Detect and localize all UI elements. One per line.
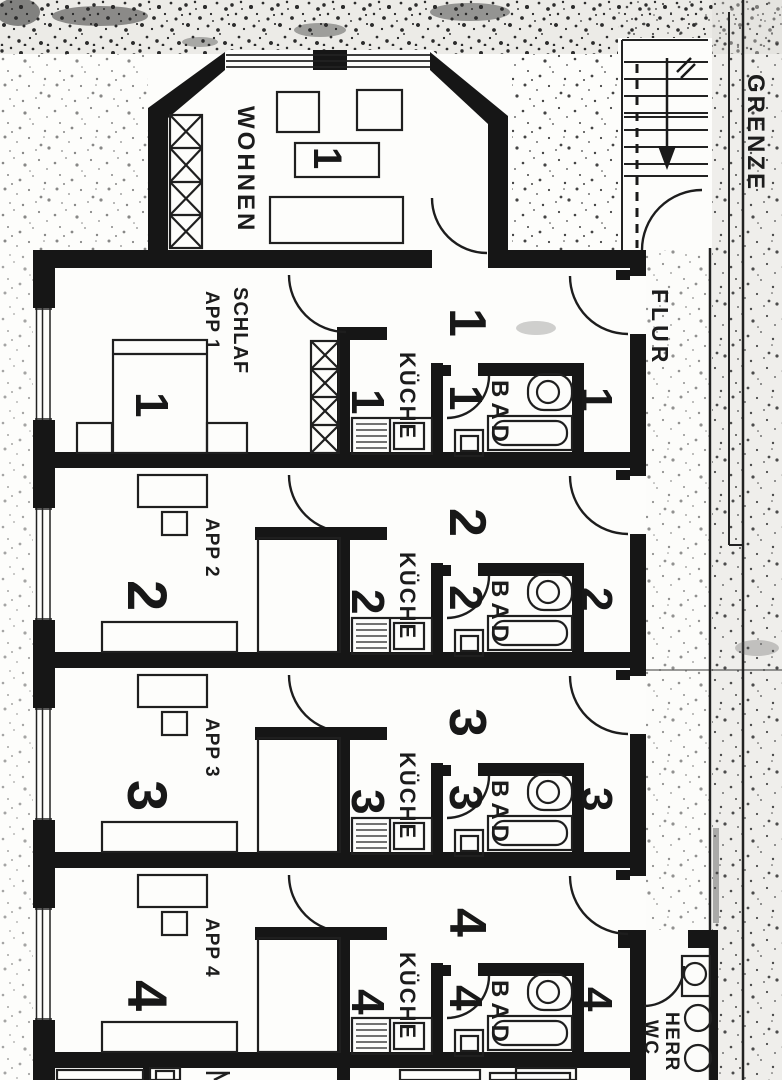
flur-label: FLUR (647, 289, 673, 366)
kueche-number-4: 4 (342, 989, 394, 1015)
bad-number-4: 4 (440, 985, 492, 1011)
door-number-3: 3 (572, 787, 621, 811)
app3-label: APP 3 (201, 718, 222, 778)
bad-number-3: 3 (440, 785, 492, 811)
kueche-number-3: 3 (342, 789, 394, 815)
room-number-4: 4 (116, 980, 179, 1011)
app2-label: APP 2 (201, 518, 222, 578)
hall-number-4: 4 (438, 908, 496, 937)
kueche-label-4: KÜCHE (395, 952, 420, 1040)
wohnen-label: WOHNEN (232, 106, 259, 233)
hall-number-3: 3 (438, 708, 496, 737)
schlaf-label: SCHLAF (229, 287, 251, 374)
floor-plan-page: WOHNEN 1 SCHLAF APP 1 1 FLUR GRENZE HERR… (0, 0, 782, 1080)
kueche-label-2: KÜCHE (395, 552, 420, 640)
app1-label: APP 1 (201, 291, 222, 351)
wohnen-number: 1 (305, 147, 349, 169)
kueche-label-1: KÜCHE (395, 352, 420, 440)
kueche-label-3: KÜCHE (395, 752, 420, 840)
room-number-2: 2 (116, 580, 179, 611)
door-number-4: 4 (572, 987, 621, 1012)
door-number-1: 1 (572, 387, 621, 411)
herren-wc-label-2: WC (640, 1020, 661, 1057)
app1-bed-number: 1 (126, 392, 178, 418)
kueche-number-1: 1 (342, 389, 394, 415)
room-number-3: 3 (116, 780, 179, 811)
floor-plan-canvas: WOHNEN 1 SCHLAF APP 1 1 FLUR GRENZE HERR… (0, 0, 782, 1080)
hall-number-2: 2 (438, 508, 496, 537)
grenze-label: GRENZE (742, 74, 769, 192)
hall-number-1: 1 (438, 308, 496, 337)
kueche-number-2: 2 (342, 589, 394, 615)
bad-number-2: 2 (440, 585, 492, 611)
herren-wc-label-1: HERR (661, 1012, 682, 1072)
app4-label: APP 4 (201, 918, 222, 978)
door-number-2: 2 (572, 587, 621, 611)
bad-number-1: 1 (440, 385, 492, 411)
